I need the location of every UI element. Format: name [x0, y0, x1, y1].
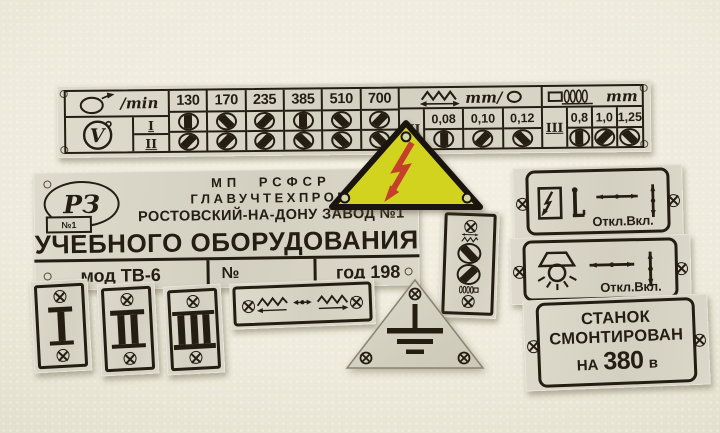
- thread-pitch-header: mm: [543, 86, 642, 108]
- spindle-rpm-header: /min: [66, 91, 168, 118]
- hole-icon: [340, 194, 349, 203]
- belt-position-icon: [216, 132, 237, 150]
- thread-column: 1,0: [593, 107, 618, 146]
- belt-position-icon: [457, 243, 482, 265]
- svg-text:V: V: [90, 125, 107, 147]
- gear-position-plate-1: [30, 279, 93, 374]
- speed-column: 170: [208, 90, 247, 150]
- hole-icon: [463, 194, 472, 203]
- voltage-line-2: СМОНТИРОВАН: [549, 325, 684, 349]
- work-lamp-icon: [534, 249, 581, 292]
- main-switch-plate: Откл.Вкл.: [512, 164, 684, 239]
- roman-numeral: [48, 306, 74, 345]
- belt-position-icon: [178, 133, 199, 151]
- feed-unit-label: mm/: [465, 88, 502, 106]
- screw-icon: [56, 349, 70, 363]
- voltage-line-3: НА 380 в: [576, 345, 658, 377]
- voltage-plate: СТАНОК СМОНТИРОВАН НА 380 в: [522, 293, 710, 391]
- feed-per-rev-header: mm/: [400, 87, 541, 109]
- switch-lever-icon: [569, 182, 587, 222]
- belt-position-icon: [178, 113, 199, 131]
- feed-zigzag-icon: [418, 88, 462, 107]
- revolution-icon: [505, 90, 522, 103]
- feed-column: 0,12: [504, 108, 542, 147]
- high-voltage-warning-triangle: [327, 119, 485, 212]
- row-label-2: II: [134, 135, 168, 151]
- pulley-v-icon: V: [66, 117, 134, 152]
- handle-horizontal-icon: [593, 189, 640, 202]
- row-label-1: I: [134, 117, 168, 135]
- screw-icon: [186, 295, 200, 309]
- speed-column: 385: [285, 89, 324, 149]
- thread-unit-label: mm: [606, 87, 638, 105]
- roman-numeral: [110, 309, 146, 349]
- belt-position-icon: [569, 129, 590, 147]
- thread-row-label: III: [543, 108, 568, 147]
- belt-position-icon: [619, 128, 640, 146]
- screw-icon: [123, 352, 137, 366]
- screw-icon: [242, 299, 255, 312]
- logo-monogram: РЗ: [63, 189, 100, 219]
- ground-triangle-plate: [343, 276, 487, 373]
- voltage-value: 380: [603, 346, 644, 377]
- roman-numeral: [172, 309, 216, 349]
- power-switch-icon: [537, 182, 564, 223]
- screw-icon: [120, 293, 134, 307]
- lead-screw-icon: [547, 87, 603, 106]
- speed-column: 235: [246, 90, 285, 150]
- screw-icon: [189, 351, 203, 365]
- gear-position-plate-3: [163, 284, 226, 376]
- belt-position-icon: [216, 112, 237, 130]
- feed-travel-arrows-icon: [454, 232, 486, 243]
- switch-state-label: Откл.Вкл.: [600, 279, 661, 295]
- thread-column: 0,8: [568, 107, 593, 146]
- switch-state-label: Откл.Вкл.: [592, 213, 653, 229]
- screw-icon: [53, 290, 67, 304]
- screw-icon: [464, 220, 477, 233]
- gear-position-plate-2: [97, 282, 160, 377]
- belt-position-icon: [293, 131, 314, 149]
- belt-position-icon: [293, 111, 314, 129]
- handle-horizontal-icon: [587, 258, 637, 271]
- voltage-unit: в: [648, 354, 658, 371]
- factory-logo: РЗ №1: [43, 180, 124, 233]
- lathe-nameplates-photo: /min V I II: [0, 0, 720, 433]
- rpm-unit-label: /min: [120, 94, 158, 112]
- thread-column: 1,25: [618, 107, 643, 146]
- voltage-prefix: НА: [576, 357, 598, 375]
- rotation-icon: [75, 92, 117, 114]
- belt-position-icon: [254, 112, 275, 130]
- hole-icon: [44, 272, 52, 280]
- belt-position-icon: [594, 128, 615, 146]
- speed-column: 130: [170, 91, 209, 151]
- hole-icon: [405, 267, 413, 275]
- belt-position-icon: [254, 132, 275, 150]
- belt-position-icon: [512, 129, 533, 147]
- feed-direction-icons: [255, 290, 351, 318]
- hole-icon: [402, 132, 411, 141]
